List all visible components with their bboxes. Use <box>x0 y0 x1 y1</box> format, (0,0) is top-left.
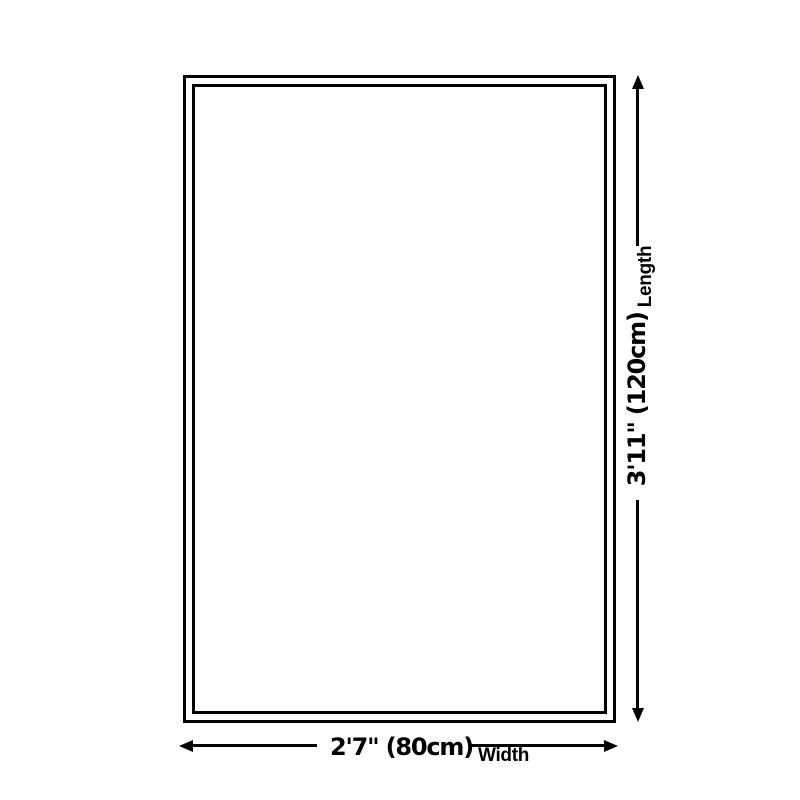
arrow-right-icon <box>604 740 618 752</box>
length-value: 3'11" (120cm) <box>625 312 649 486</box>
length-caption: Length <box>636 246 655 308</box>
width-arrow-left-segment <box>193 744 317 747</box>
length-arrow-bottom-segment <box>636 500 639 708</box>
width-dimension-label: 2'7" (80cm) Width <box>330 735 529 759</box>
arrow-down-icon <box>632 708 644 722</box>
arrow-left-icon <box>179 740 193 752</box>
arrow-up-icon <box>632 75 644 89</box>
product-outline-inner <box>192 84 607 714</box>
length-dimension-label: 3'11" (120cm) Length <box>625 246 649 487</box>
product-outline-outer <box>183 75 616 723</box>
width-caption: Width <box>478 746 529 765</box>
width-value: 2'7" (80cm) <box>330 735 473 759</box>
length-arrow-top-segment <box>636 88 639 246</box>
